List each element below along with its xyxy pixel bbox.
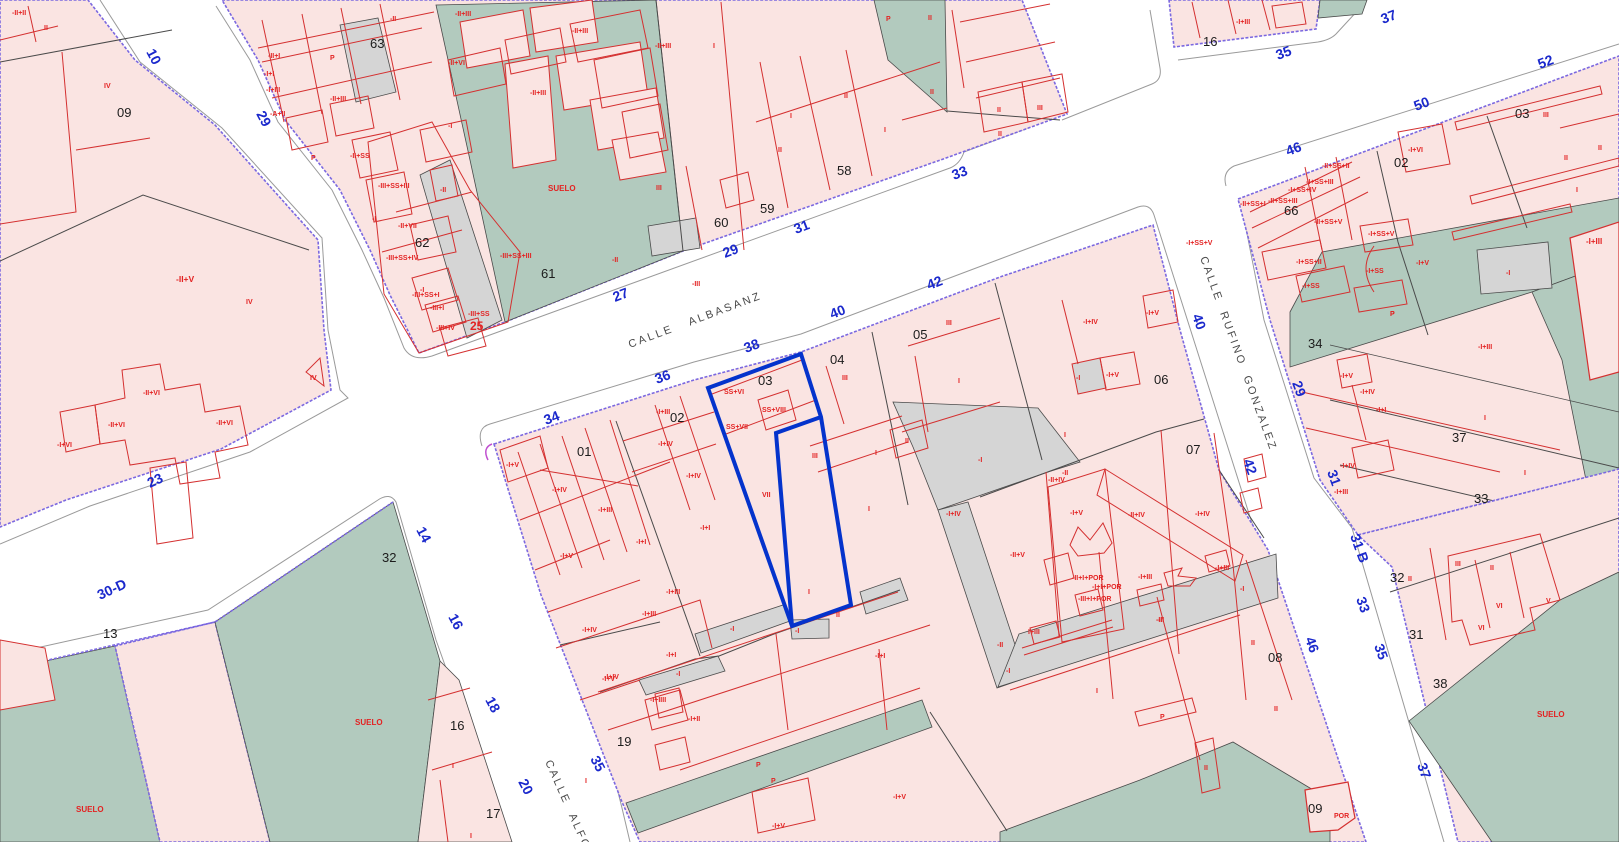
svg-text:38: 38: [1433, 676, 1447, 691]
svg-text:-II+VI: -II+VI: [216, 420, 233, 427]
svg-text:P: P: [311, 155, 316, 162]
svg-text:I: I: [808, 589, 810, 596]
svg-text:I: I: [452, 763, 454, 770]
svg-text:-I: -I: [1006, 668, 1010, 675]
svg-text:-I+V: -I+V: [506, 462, 519, 469]
svg-text:-III+SS+III: -III+SS+III: [378, 183, 410, 190]
svg-text:-I+SS+III: -I+SS+III: [1306, 179, 1334, 186]
svg-text:-II+IV: -II+IV: [1128, 512, 1145, 519]
svg-text:-I+V: -I+V: [560, 553, 573, 560]
svg-text:-II: -II: [440, 187, 446, 194]
svg-text:-II+VI: -II+VI: [108, 422, 125, 429]
svg-text:60: 60: [714, 215, 728, 230]
svg-text:-I+IV: -I+IV: [1360, 389, 1375, 396]
svg-text:09: 09: [1308, 801, 1322, 816]
svg-text:P: P: [771, 778, 776, 785]
svg-text:P: P: [886, 16, 891, 23]
svg-text:VII: VII: [762, 492, 771, 499]
svg-text:I: I: [1524, 470, 1526, 477]
svg-text:-II+VII: -II+VII: [398, 223, 417, 230]
svg-text:III: III: [656, 185, 662, 192]
svg-text:-I+I: -I+I: [700, 525, 710, 532]
svg-text:II: II: [1490, 565, 1494, 572]
svg-text:I: I: [868, 506, 870, 513]
svg-text:II: II: [836, 612, 840, 619]
svg-text:-I+III: -I+III: [1478, 344, 1492, 351]
svg-text:SUELO: SUELO: [548, 184, 576, 193]
svg-text:-III: -III: [692, 281, 700, 288]
svg-text:I: I: [470, 833, 472, 840]
svg-text:II: II: [998, 131, 1002, 138]
svg-text:SS+VII: SS+VII: [726, 424, 748, 431]
svg-text:II: II: [1251, 640, 1255, 647]
svg-text:I: I: [1096, 688, 1098, 695]
svg-text:-II+III: -II+III: [572, 28, 588, 35]
svg-text:-I+IV: -I+IV: [658, 441, 673, 448]
svg-text:61: 61: [541, 266, 555, 281]
svg-text:-III+SS: -III+SS: [468, 311, 490, 318]
svg-text:-I+IV: -I+IV: [946, 511, 961, 518]
svg-text:58: 58: [837, 163, 851, 178]
svg-text:II: II: [905, 438, 909, 445]
svg-text:-II+VI: -II+VI: [448, 60, 465, 67]
svg-text:-I+IV: -I+IV: [582, 627, 597, 634]
svg-text:13: 13: [103, 626, 117, 641]
svg-text:-I: -I: [730, 626, 734, 633]
svg-text:-I+III: -I+III: [1215, 565, 1229, 572]
svg-text:06: 06: [1154, 372, 1168, 387]
svg-text:-I: -I: [795, 628, 799, 635]
svg-text:-II: -II: [390, 16, 396, 23]
svg-text:-I+III: -I+III: [598, 507, 612, 514]
svg-text:-II+SS: -II+SS: [350, 153, 370, 160]
svg-text:SS+VIII: SS+VIII: [762, 407, 786, 414]
svg-text:-II+I: -II+I: [268, 53, 280, 60]
svg-text:34: 34: [1308, 336, 1322, 351]
svg-text:-I+VI: -I+VI: [1408, 147, 1423, 154]
svg-text:P: P: [1160, 714, 1165, 721]
svg-text:-I+IV: -I+IV: [1083, 319, 1098, 326]
svg-text:III: III: [1455, 561, 1461, 568]
svg-text:I+III: I+III: [1028, 629, 1040, 636]
svg-text:II: II: [1204, 765, 1208, 772]
svg-text:I: I: [1064, 432, 1066, 439]
svg-text:-III+I: -III+I: [430, 305, 444, 312]
svg-text:-I+III: -I+III: [1334, 489, 1348, 496]
svg-text:P: P: [756, 762, 761, 769]
svg-text:-II+V: -II+V: [176, 274, 195, 284]
svg-text:16: 16: [1203, 34, 1217, 49]
svg-text:III: III: [842, 375, 848, 382]
svg-text:-I+SS+V: -I+SS+V: [1368, 231, 1395, 238]
svg-text:I: I: [585, 778, 587, 785]
svg-text:-I+V: -I+V: [1340, 373, 1353, 380]
svg-text:-II: -II: [1062, 470, 1068, 477]
svg-text:-II+SS+V: -II+SS+V: [1314, 219, 1343, 226]
svg-text:-I+III: -I+III: [1236, 19, 1250, 26]
svg-text:-I+III: -I+III: [1138, 574, 1152, 581]
svg-text:-I+V: -I+V: [1146, 310, 1159, 317]
svg-text:-II+VI: -II+VI: [143, 390, 160, 397]
svg-text:05: 05: [913, 327, 927, 342]
svg-text:03: 03: [758, 373, 772, 388]
svg-text:I: I: [1484, 415, 1486, 422]
svg-text:32: 32: [382, 550, 396, 565]
svg-text:I: I: [713, 43, 715, 50]
svg-text:31: 31: [1409, 627, 1423, 642]
svg-text:IV: IV: [104, 83, 111, 90]
svg-text:-II+IV: -II+IV: [1048, 477, 1065, 484]
svg-text:-II+SS+I: -II+SS+I: [1240, 201, 1266, 208]
svg-text:-III+IV: -III+IV: [436, 325, 455, 332]
svg-text:II: II: [844, 93, 848, 100]
svg-text:-I+III: -I+III: [1586, 237, 1602, 246]
svg-text:-II: -II: [1156, 617, 1162, 624]
svg-text:-I+V: -I+V: [1416, 260, 1429, 267]
svg-text:II: II: [1274, 706, 1278, 713]
svg-text:I: I: [884, 127, 886, 134]
svg-text:-I+III: -I+III: [656, 409, 670, 416]
svg-text:25: 25: [470, 319, 484, 333]
svg-text:I: I: [958, 378, 960, 385]
svg-text:-I+IV: -I+IV: [686, 473, 701, 480]
svg-text:09: 09: [117, 105, 131, 120]
svg-text:-I: -I: [1240, 586, 1244, 593]
svg-text:-I+III: -I+III: [266, 87, 280, 94]
svg-text:-II+V: -II+V: [1010, 552, 1025, 559]
svg-text:I: I: [875, 450, 877, 457]
svg-text:-II: -II: [612, 257, 618, 264]
svg-text:-I: -I: [1506, 270, 1510, 277]
svg-text:33: 33: [1474, 491, 1488, 506]
svg-text:III: III: [1543, 112, 1549, 119]
svg-text:-II+II: -II+II: [12, 10, 26, 17]
svg-text:III: III: [1037, 105, 1043, 112]
svg-text:-I+IV: -I+IV: [1340, 463, 1355, 470]
svg-text:P: P: [1390, 311, 1395, 318]
svg-text:-I+SS: -I+SS: [1302, 283, 1320, 290]
svg-text:63: 63: [370, 36, 384, 51]
svg-text:62: 62: [415, 235, 429, 250]
svg-text:-I+I: -I+I: [636, 539, 646, 546]
svg-text:-I+III: -I+III: [642, 611, 656, 618]
svg-text:SUELO: SUELO: [355, 718, 383, 727]
svg-text:-III+SS+I: -III+SS+I: [412, 292, 440, 299]
svg-text:17: 17: [486, 806, 500, 821]
svg-text:VI: VI: [1496, 603, 1503, 610]
svg-text:-II+III: -II+III: [530, 90, 546, 97]
svg-text:II: II: [997, 107, 1001, 114]
svg-text:SS+VI: SS+VI: [724, 389, 744, 396]
svg-text:P: P: [330, 55, 335, 62]
svg-text:37: 37: [1452, 430, 1466, 445]
svg-text:II: II: [44, 25, 48, 32]
svg-text:02: 02: [670, 410, 684, 425]
svg-text:-I+SS+II: -I+SS+II: [1296, 259, 1322, 266]
svg-text:03: 03: [1515, 106, 1529, 121]
svg-text:08: 08: [1268, 650, 1282, 665]
svg-text:-I: -I: [978, 457, 982, 464]
svg-text:-II: -II: [997, 642, 1003, 649]
svg-text:-III+SS+III: -III+SS+III: [500, 253, 532, 260]
svg-text:-II+III: -II+III: [330, 96, 346, 103]
svg-text:-II+III: -II+III: [455, 11, 471, 18]
svg-text:-I+V: -I+V: [772, 823, 785, 830]
svg-text:-I+IV: -I+IV: [1195, 511, 1210, 518]
svg-text:II: II: [1598, 145, 1602, 152]
svg-text:66: 66: [1284, 203, 1298, 218]
svg-text:-I+III: -I+III: [666, 589, 680, 596]
svg-text:SUELO: SUELO: [1537, 710, 1565, 719]
svg-text:-I+V: -I+V: [1070, 510, 1083, 517]
svg-text:-II+III: -II+III: [655, 43, 671, 50]
svg-text:32: 32: [1390, 570, 1404, 585]
svg-text:-I+SS+IV: -I+SS+IV: [1288, 187, 1317, 194]
svg-text:-I+I: -I+I: [875, 653, 885, 660]
svg-text:-III+I+POR: -III+I+POR: [1078, 596, 1111, 603]
svg-text:04: 04: [830, 352, 844, 367]
svg-text:-I+V: -I+V: [602, 676, 615, 683]
svg-text:02: 02: [1394, 155, 1408, 170]
svg-text:I: I: [1576, 187, 1578, 194]
svg-text:16: 16: [450, 718, 464, 733]
svg-text:-I+I+POR: -I+I+POR: [1092, 584, 1122, 591]
svg-text:VI: VI: [1478, 625, 1485, 632]
svg-text:-I: -I: [372, 216, 376, 223]
svg-text:-I+V: -I+V: [893, 794, 906, 801]
svg-text:-I+IIII: -I+IIII: [650, 697, 666, 704]
svg-text:-I+I: -I+I: [1376, 407, 1386, 414]
svg-text:-I+I: -I+I: [264, 71, 274, 78]
svg-text:POR: POR: [1334, 813, 1349, 820]
svg-text:IV: IV: [246, 299, 253, 306]
svg-text:II: II: [778, 147, 782, 154]
svg-text:II: II: [928, 15, 932, 22]
svg-text:II: II: [1564, 155, 1568, 162]
svg-text:-I+VI: -I+VI: [57, 442, 72, 449]
svg-text:07: 07: [1186, 442, 1200, 457]
svg-text:IV: IV: [310, 375, 317, 382]
svg-text:-I: -I: [676, 671, 680, 678]
svg-text:01: 01: [577, 444, 591, 459]
svg-text:V: V: [1546, 598, 1551, 605]
svg-text:-II+SS+II: -II+SS+II: [1322, 163, 1350, 170]
svg-text:III: III: [946, 320, 952, 327]
svg-text:-I+II: -I+II: [688, 716, 700, 723]
svg-text:-III+SS+IV: -III+SS+IV: [386, 255, 419, 262]
svg-text:-I: -I: [448, 123, 452, 130]
svg-text:I: I: [790, 113, 792, 120]
svg-text:59: 59: [760, 201, 774, 216]
svg-text:-I+I: -I+I: [666, 652, 676, 659]
svg-text:II: II: [930, 89, 934, 96]
svg-text:-II+I+POR: -II+I+POR: [1072, 575, 1104, 582]
svg-text:-I+SS: -I+SS: [1366, 268, 1384, 275]
svg-text:-I+IV: -I+IV: [552, 487, 567, 494]
svg-text:II: II: [1408, 576, 1412, 583]
svg-text:-I: -I: [1076, 375, 1080, 382]
svg-text:-I+V: -I+V: [1106, 372, 1119, 379]
svg-text:III: III: [812, 453, 818, 460]
svg-text:-I+SS+V: -I+SS+V: [1186, 240, 1213, 247]
svg-text:SUELO: SUELO: [76, 805, 104, 814]
svg-text:19: 19: [617, 734, 631, 749]
